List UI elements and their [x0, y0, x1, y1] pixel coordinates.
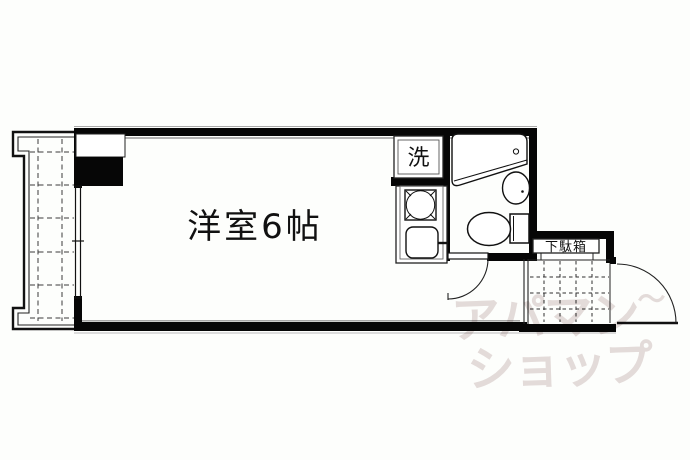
toilet-bowl: [468, 213, 511, 246]
balcony: [13, 132, 74, 329]
balcony-railing-inner: [18, 137, 74, 325]
kitchen-unit: [396, 186, 447, 263]
bathroom-door-leaf: [448, 253, 488, 259]
walls: [74, 127, 616, 334]
balcony-window: [72, 186, 84, 298]
entrance-door-jamb: [610, 257, 616, 264]
pillar: [74, 157, 123, 186]
balcony-grid: [30, 139, 74, 321]
toilet-tank: [510, 214, 529, 243]
bathroom-door-icon: [448, 253, 488, 300]
toilet-icon: [468, 213, 530, 246]
pipe-space-box: [76, 134, 125, 157]
genkan-tiles: [530, 261, 609, 322]
shoe-cabinet: 下駄箱: [533, 239, 599, 255]
entrance-door-swing-arc: [617, 264, 676, 323]
wall-shoebox-top: [529, 231, 614, 239]
wall-genkan-bottom: [519, 324, 616, 332]
room-label: 洋室6帖: [187, 207, 323, 247]
washer-space: 洗: [394, 136, 443, 178]
floorplan-svg: 洗: [0, 0, 690, 460]
washer-label: 洗: [407, 146, 429, 171]
shoe-cabinet-label: 下駄箱: [545, 239, 587, 255]
unit-bath: [448, 134, 530, 300]
wash-basin-icon: [503, 172, 530, 204]
floorplan-image: 洗: [0, 0, 690, 460]
genkan: 下駄箱: [524, 239, 678, 324]
wall-bottom: [74, 322, 527, 331]
entrance-door-icon: [617, 264, 678, 323]
balcony-railing-outer: [13, 132, 74, 329]
bathroom-door-swing-arc: [448, 259, 488, 299]
